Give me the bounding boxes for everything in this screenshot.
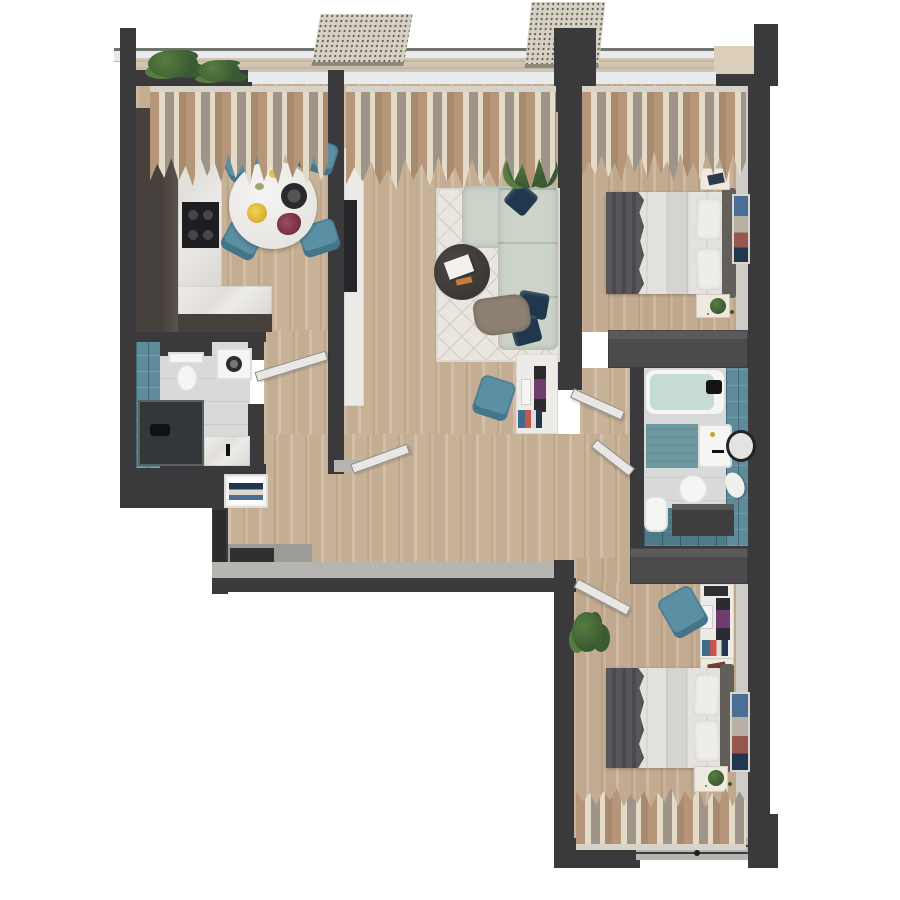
wall-right-step xyxy=(748,814,778,868)
bedroom2-books xyxy=(702,640,728,656)
bathroom1-toilet-bowl xyxy=(176,364,198,392)
bedroom1-pillow xyxy=(695,197,723,240)
bedroom2-monitor xyxy=(716,598,730,640)
flower-vase xyxy=(277,213,301,235)
wall-living-bedroom1-divider xyxy=(558,112,582,390)
living-desk-monitor xyxy=(534,366,546,412)
floor-plan-render xyxy=(0,0,900,900)
bathtub xyxy=(644,368,726,416)
bedroom2-wall-art xyxy=(732,694,748,770)
wall-wing-left xyxy=(554,560,574,868)
sink-accessory xyxy=(710,432,715,437)
bedroom2-plant xyxy=(572,612,602,652)
living-storage-partition xyxy=(428,434,560,472)
wall-kitchen-living-divider xyxy=(328,70,344,474)
sink-faucet xyxy=(712,450,724,453)
living-desk-keyboard xyxy=(522,380,530,404)
bathroom1-toilet-tank xyxy=(168,352,204,364)
kitchen-counter-bottom xyxy=(178,286,272,316)
faucet xyxy=(226,444,230,456)
wall-hall-bottom xyxy=(212,578,576,592)
wall-bathroom2-left xyxy=(630,368,644,562)
book xyxy=(456,276,473,285)
bathroom2-bath-mat xyxy=(646,424,698,468)
shower-fixture xyxy=(150,424,170,436)
balcony-plant xyxy=(148,50,198,78)
wall-entry-horizontal xyxy=(120,478,228,508)
washing-machine xyxy=(216,348,252,380)
wall-bathroom1-right-lower xyxy=(248,404,264,470)
bedroom1-wall-art xyxy=(734,196,748,262)
entry-open-shelf xyxy=(224,474,268,508)
nightstand-decor xyxy=(707,172,725,185)
entry-doormat xyxy=(230,548,274,562)
bathroom2-round-mirror xyxy=(726,430,756,462)
door-handle-knob xyxy=(694,850,700,856)
kitchen-base-cabinet xyxy=(178,314,272,332)
small-dish xyxy=(255,183,264,190)
tv-screen xyxy=(344,200,357,292)
bedroom1-bed-throw xyxy=(606,192,644,294)
bedroom1-nightstand xyxy=(696,294,730,318)
coffee-tray xyxy=(281,183,307,209)
sofa-throw-blanket xyxy=(472,292,533,337)
fruit-bowl xyxy=(247,203,267,223)
bedroom2-desk-shelf xyxy=(704,586,728,596)
bedroom1-pillow xyxy=(695,247,723,290)
coffee-table xyxy=(434,244,490,300)
bathtub-water xyxy=(650,374,714,410)
bedroom2-wardrobe xyxy=(630,548,748,584)
bathroom2-bidet xyxy=(644,496,668,532)
bathroom2-vanity xyxy=(672,504,734,536)
bathroom2-toilet xyxy=(678,474,708,504)
nightstand-plant xyxy=(708,770,724,786)
bath-faucet xyxy=(706,380,722,394)
bedroom1-wardrobe xyxy=(608,330,748,368)
washer-door xyxy=(226,356,242,372)
bedroom2-nightstand xyxy=(694,766,728,792)
wall-left xyxy=(120,28,136,480)
wall-hall-bottom-cap xyxy=(212,562,576,578)
balcony-plant xyxy=(198,60,240,82)
perforated-awning-left xyxy=(311,14,412,66)
living-desk-books xyxy=(518,410,542,428)
bedroom2-bed-throw xyxy=(606,668,644,768)
cooktop xyxy=(182,202,219,248)
wall-right-upper xyxy=(754,24,778,86)
door-track xyxy=(636,852,748,854)
bathroom1-sink-counter xyxy=(204,436,250,466)
shower-enclosure xyxy=(138,400,204,466)
bedroom2-pillow xyxy=(693,673,721,716)
towel-stack xyxy=(229,478,263,504)
nightstand-plant xyxy=(710,298,726,314)
bedroom2-pillow xyxy=(693,719,721,762)
